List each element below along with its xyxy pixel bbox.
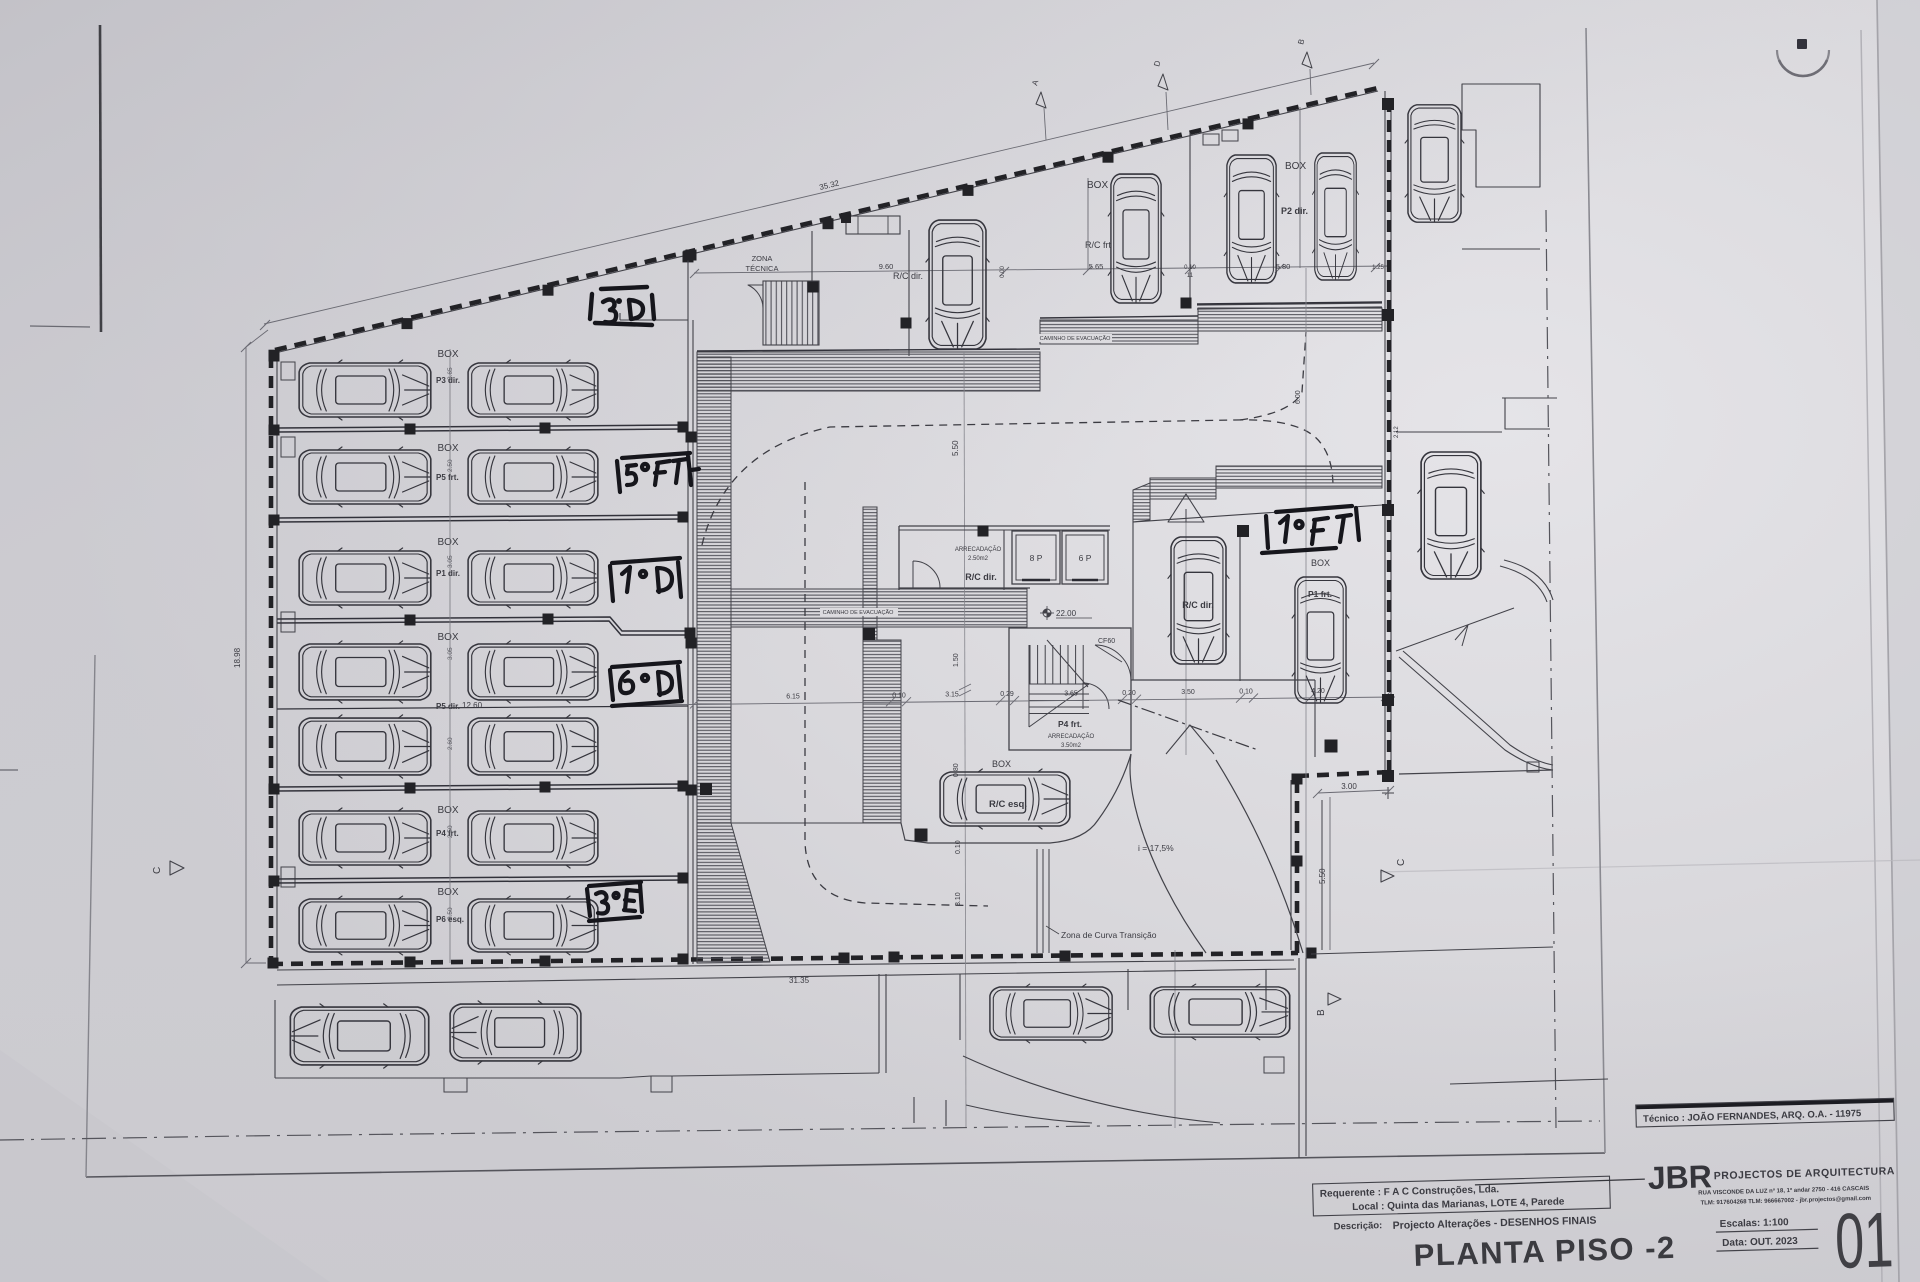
svg-text:0.10: 0.10 xyxy=(892,692,906,699)
svg-text:3.50m2: 3.50m2 xyxy=(1061,743,1082,749)
svg-text:2.50: 2.50 xyxy=(447,825,454,838)
svg-text:0.00: 0.00 xyxy=(1000,266,1006,278)
svg-text:5.65: 5.65 xyxy=(1089,262,1104,271)
svg-text:BOX: BOX xyxy=(1087,180,1108,191)
svg-text:2.50m2: 2.50m2 xyxy=(968,556,989,562)
svg-text:2.50: 2.50 xyxy=(447,459,454,472)
svg-text:Escalas: 1:100: Escalas: 1:100 xyxy=(1720,1217,1790,1230)
svg-text:BOX: BOX xyxy=(1311,558,1330,568)
svg-text:22.00: 22.00 xyxy=(1056,609,1077,618)
svg-text:ZONA: ZONA xyxy=(752,254,773,263)
svg-text:0.10: 0.10 xyxy=(955,840,962,854)
svg-text:3.65: 3.65 xyxy=(1064,690,1078,697)
svg-text:BOX: BOX xyxy=(437,887,458,898)
svg-text:18.98: 18.98 xyxy=(233,647,242,668)
svg-text:5.80: 5.80 xyxy=(1276,262,1291,271)
svg-text:P5 dir.: P5 dir. xyxy=(436,702,460,711)
svg-text:P1 dir.: P1 dir. xyxy=(436,569,460,578)
svg-text:R/C dir.: R/C dir. xyxy=(893,271,923,281)
svg-text:1.50: 1.50 xyxy=(953,653,960,667)
svg-text:CF60: CF60 xyxy=(1098,638,1115,645)
svg-text:CAMINHO DE EVACUAÇÃO: CAMINHO DE EVACUAÇÃO xyxy=(1040,335,1112,342)
svg-text:6.15: 6.15 xyxy=(786,693,800,700)
svg-text:BOX: BOX xyxy=(437,805,458,816)
svg-text:CAMINHO DE EVACUAÇÃO: CAMINHO DE EVACUAÇÃO xyxy=(823,609,895,616)
svg-text:12.60: 12.60 xyxy=(462,701,483,710)
svg-text:0.20: 0.20 xyxy=(1122,690,1136,697)
svg-text:2.50: 2.50 xyxy=(447,907,454,920)
svg-text:5.50: 5.50 xyxy=(951,440,960,456)
svg-text:0.29: 0.29 xyxy=(1000,691,1014,698)
svg-text:3.00: 3.00 xyxy=(1341,782,1357,791)
svg-text:0.10: 0.10 xyxy=(1239,689,1253,696)
svg-text:3.15: 3.15 xyxy=(945,692,959,699)
svg-text:5.50: 5.50 xyxy=(1318,868,1327,884)
svg-text:R/C dir.: R/C dir. xyxy=(1182,600,1214,610)
svg-text:BOX: BOX xyxy=(437,632,458,643)
svg-text:TÉCNICA: TÉCNICA xyxy=(746,264,779,273)
svg-text:R/C dir.: R/C dir. xyxy=(965,572,997,582)
svg-text:3.50: 3.50 xyxy=(1181,689,1195,696)
svg-text:3.65: 3.65 xyxy=(447,367,454,380)
svg-text:Zona de Curva Transição: Zona de Curva Transição xyxy=(1061,930,1157,940)
svg-text:BOX: BOX xyxy=(437,349,458,360)
svg-text:6.00: 6.00 xyxy=(1295,390,1302,404)
svg-text:C: C xyxy=(152,867,163,874)
svg-text:6 P: 6 P xyxy=(1079,553,1092,563)
svg-text:BOX: BOX xyxy=(992,759,1011,769)
svg-text:BOX: BOX xyxy=(437,537,458,548)
svg-text:2.60: 2.60 xyxy=(447,737,454,750)
svg-text:ARRECADAÇÃO: ARRECADAÇÃO xyxy=(955,546,1002,553)
svg-text:ARRECADAÇÃO: ARRECADAÇÃO xyxy=(1048,733,1095,740)
svg-text:9.60: 9.60 xyxy=(879,262,894,271)
svg-text:P2 dir.: P2 dir. xyxy=(1281,206,1308,216)
svg-text:R/C frt: R/C frt xyxy=(1085,240,1111,250)
svg-text:3.10: 3.10 xyxy=(955,892,962,906)
svg-text:P5 frt.: P5 frt. xyxy=(436,473,459,482)
svg-text:Descrição:: Descrição: xyxy=(1334,1220,1383,1232)
svg-text:P1 frt.: P1 frt. xyxy=(1308,589,1332,599)
svg-text:01: 01 xyxy=(1834,1195,1895,1282)
svg-text:1.25: 1.25 xyxy=(1372,265,1384,271)
svg-text:3.05: 3.05 xyxy=(447,647,454,660)
svg-text:31.35: 31.35 xyxy=(789,976,810,985)
svg-text:Data: OUT. 2023: Data: OUT. 2023 xyxy=(1722,1236,1798,1249)
svg-text:i = 17,5%: i = 17,5% xyxy=(1138,843,1174,853)
svg-text:3.05: 3.05 xyxy=(447,555,454,568)
svg-text:P4 frt.: P4 frt. xyxy=(1058,719,1082,729)
svg-text:8 P: 8 P xyxy=(1030,553,1043,563)
svg-text:B: B xyxy=(1316,1009,1327,1016)
svg-text:BOX: BOX xyxy=(1285,161,1306,172)
svg-text:BOX: BOX xyxy=(437,443,458,454)
svg-text:C: C xyxy=(1396,859,1407,866)
svg-text:R/C esq.: R/C esq. xyxy=(989,799,1027,810)
